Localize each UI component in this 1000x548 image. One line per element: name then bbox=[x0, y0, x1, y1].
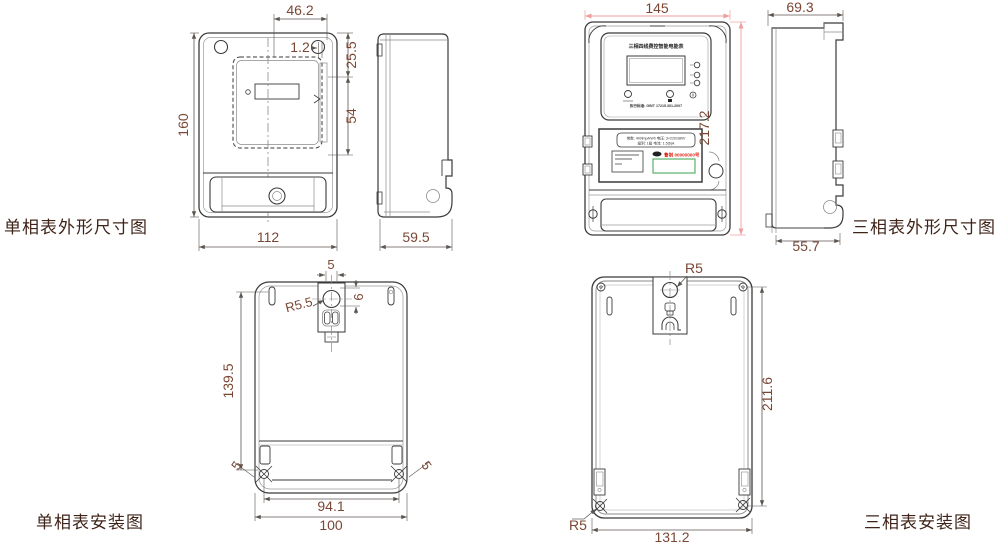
dim-depth-label: 59.5 bbox=[402, 229, 429, 245]
hinge-bottom bbox=[583, 164, 592, 175]
dim-bottom-radius-label: R5 bbox=[569, 517, 587, 533]
caption-three-outline: 三相表外形尺寸图 bbox=[852, 218, 996, 237]
mount-screw-bottom-left bbox=[593, 499, 607, 513]
nameplate-spec-line1: 常数: 400imp/kWh 电压: 3×220/380V bbox=[627, 136, 686, 141]
single-phase-side-view bbox=[377, 34, 452, 217]
hinge-top bbox=[583, 136, 592, 147]
side-clip-2 bbox=[833, 161, 843, 178]
dim-height-label: 139.5 bbox=[220, 363, 236, 398]
single-phase-front-view bbox=[199, 33, 337, 222]
dim-top-radius-label: R5 bbox=[685, 260, 703, 276]
three-phase-side-view bbox=[766, 23, 843, 233]
dim-height-label: 160 bbox=[175, 113, 191, 137]
caption-single-install: 单相表安装图 bbox=[36, 513, 144, 532]
nameplate-spec-line2: 级别: 1级 电流: 1.5(6)A bbox=[638, 141, 675, 146]
dim-height-label: 217.2 bbox=[696, 110, 712, 145]
terminal-cover bbox=[210, 177, 326, 212]
single-phase-install-view bbox=[255, 275, 407, 493]
dim-window-label: 54 bbox=[343, 108, 359, 124]
dim-depth-label: 69.3 bbox=[786, 0, 813, 15]
dim-hole-span-label: 94.1 bbox=[317, 498, 344, 514]
side-body-outline bbox=[378, 34, 452, 217]
mount-screw-bottom-right bbox=[736, 498, 750, 512]
dim-ear-right-label: 5 bbox=[418, 458, 434, 473]
dim-width-label: 100 bbox=[319, 517, 343, 533]
dim-hole-span-label: 46.2 bbox=[286, 2, 313, 18]
dim-height-label: 211.6 bbox=[759, 377, 775, 411]
dim-lip-label: 1.2 bbox=[290, 39, 310, 55]
side-body-outline bbox=[772, 23, 843, 228]
dim-width-label: 131.2 bbox=[654, 529, 689, 545]
three-phase-install-view bbox=[592, 271, 752, 518]
cmc-mark bbox=[653, 152, 662, 157]
dim-slot-width-label: 5 bbox=[327, 257, 334, 272]
bottom-clip-right bbox=[739, 469, 750, 495]
dim-hole-offset-label: 6 bbox=[351, 293, 366, 300]
caption-single-outline: 单相表外形尺寸图 bbox=[4, 218, 148, 237]
side-clip-bottom-left bbox=[766, 214, 772, 227]
meter-dimension-sheet: 160 112 46.2 1.2 25.5 54 59.5 bbox=[0, 0, 1000, 548]
nameplate-serial: 鲁制 00000000号 bbox=[663, 152, 700, 159]
dim-top-section-label: 25.5 bbox=[343, 41, 359, 68]
terminal-cover bbox=[601, 199, 716, 231]
caption-three-install: 三相表安装图 bbox=[864, 513, 972, 532]
dim-width-label: 145 bbox=[645, 0, 669, 16]
faceplate-standard: 执行标准: GB/T 17215.301-2007 bbox=[630, 103, 682, 108]
dim-ear-left-label: 5 bbox=[228, 458, 244, 473]
faceplate-title: 三相四线费控智能电能表 bbox=[628, 43, 684, 50]
dim-width-label: 112 bbox=[257, 229, 280, 245]
drawing-canvas: 160 112 46.2 1.2 25.5 54 59.5 bbox=[0, 0, 1000, 548]
bottom-clip-left bbox=[594, 469, 605, 495]
side-clip-1 bbox=[833, 130, 843, 147]
dim-terminal-depth-label: 55.7 bbox=[792, 238, 819, 254]
